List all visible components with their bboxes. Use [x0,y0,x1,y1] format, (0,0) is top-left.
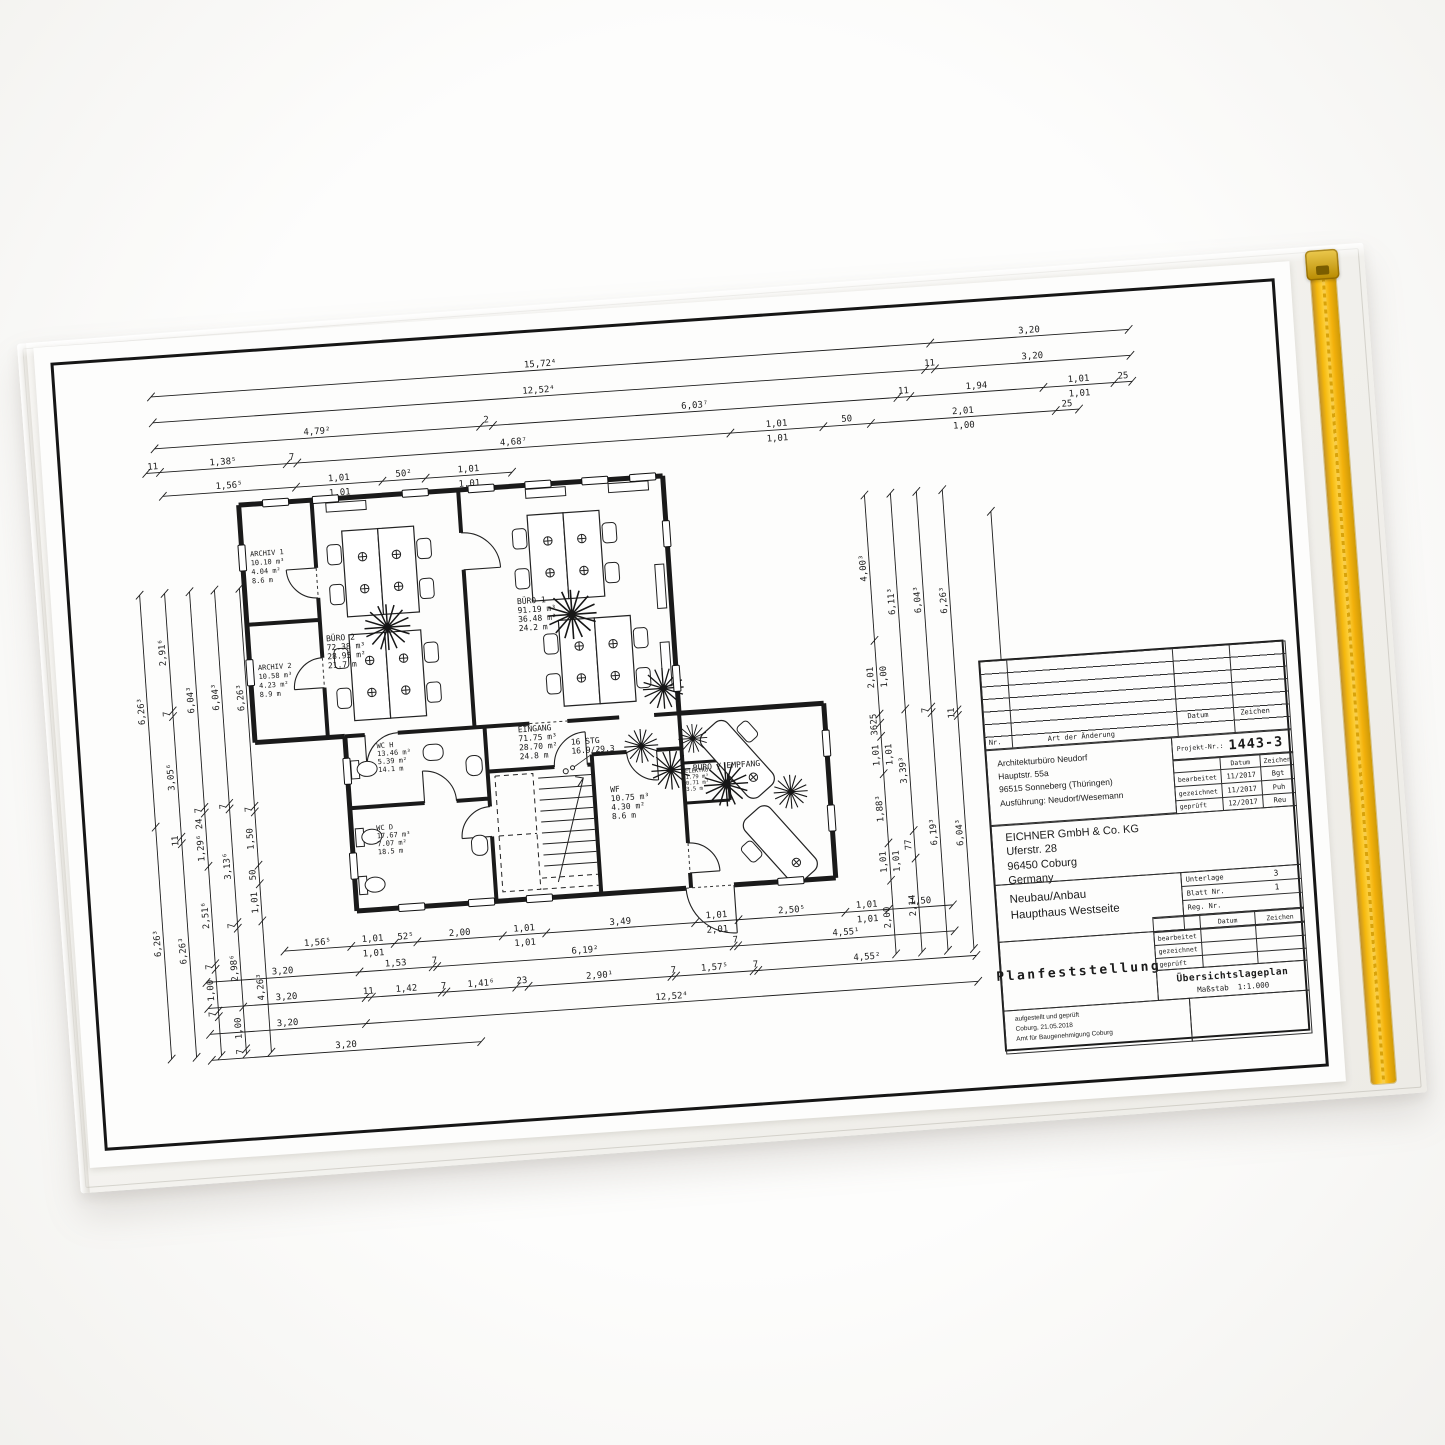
room-value: 3.5 m [686,786,704,793]
dim-label: 25 [869,713,880,725]
dim-label: 4,55¹ [832,927,860,939]
dim-label: 7 [732,935,738,945]
dim-label: 36 [870,724,881,736]
window-marker [672,665,681,691]
empty-cell [1189,990,1313,1042]
dim-label: 7 [219,804,229,810]
window-marker [822,730,831,756]
room-value: 8.6 m [612,810,637,821]
window-marker [582,476,608,485]
dim-label: 77 [904,839,915,851]
dim-label: 50² [395,469,412,480]
dim-label: 6,04³ [186,686,198,714]
dim-label: 7 [227,923,237,929]
change-nr-header: Nr. [989,738,1002,747]
dim-label: 7 [921,707,931,713]
dim-label: 11 [147,462,159,473]
window-marker [778,877,804,886]
dim-label: 1,01 [1067,374,1089,385]
dim-label: 7 [441,981,447,991]
dim-label: 2 [483,415,489,425]
dim-label: 6,26³ [236,684,248,712]
scale-value: 1:1.000 [1237,980,1269,991]
dim-label: 1,56⁵ [304,937,332,949]
dim-label: 4,55² [853,952,881,964]
window-marker [402,489,428,498]
dim-label: 1,01 [884,743,895,765]
dim-label: 3,20 [271,966,293,977]
wc-fixtures [350,741,491,895]
room-value: 14.1 m [378,764,404,774]
dim-label: 6,03⁷ [681,400,709,412]
dim-label: 1,01 [361,934,383,945]
dim-label: 1,01 [328,473,350,484]
dim-label: 1,00 [953,420,975,431]
scale-label: Maßstab [1197,983,1229,994]
dim-label: 4,68⁷ [500,437,528,449]
window-marker [525,480,551,489]
doc-value [1280,900,1302,902]
dim-label: 7 [236,1049,246,1055]
staircase [494,756,599,892]
dim-label: 3,49 [609,917,631,928]
dim-label: 1,01 [871,744,882,766]
dim-label: 1,57⁵ [701,962,729,974]
dim-label: 4,00³ [858,554,870,582]
plan-protection-sleeve: ARCHIV 1 10.10 m³ 4.04 m² 8.6 m BÜRO 2 7… [17,243,1427,1194]
dim-label: 7 [194,808,204,814]
dim-label: 1,01 [457,464,479,475]
dim-label: 1,01 [514,938,536,949]
dim-label: 52⁵ [397,932,414,943]
dim-label: 3,20 [276,1018,298,1029]
dim-label: 11 [924,358,936,369]
dim-label: 4,26³ [255,973,267,1001]
dim-label: 2,50⁵ [778,905,806,917]
dim-label: 1,01 [250,892,261,914]
dim-label: 6,26³ [152,930,164,958]
room-value: 4.23 m² [259,680,289,690]
dim-label: 2,01 [866,666,877,688]
dim-label: 3,39³ [898,756,910,784]
dim-label: 1,38⁵ [209,457,237,469]
dim-label: 11 [363,986,375,997]
dim-label: 1,00 [879,666,890,688]
room-value: 24.8 m [519,750,549,761]
dim-label: 1,53 [385,958,407,969]
dim-label: 7 [162,711,172,717]
window-marker [526,894,552,903]
main-title-cell: Planfeststellung [999,931,1159,1012]
dim-label: 1,01 [513,923,535,934]
dim-label: 7 [244,806,254,812]
dim-label: 1,50 [245,828,256,850]
dim-label: 2,90¹ [586,970,614,982]
room-value: 24.2 m [519,622,549,633]
dim-label: 11 [898,386,910,397]
dim-label: 3,13⁶ [222,852,234,880]
dim-label: 7 [289,453,295,463]
dim-label: 6,04³ [954,818,966,846]
dim-label: 4,79² [303,426,331,438]
window-marker [629,473,655,482]
dim-label: 1,01 [765,419,787,430]
window-marker [262,498,288,507]
dim-label: 1,01 [362,948,384,959]
dim-label: 1,94 [965,381,987,392]
dim-label: 6,11³ [886,588,898,616]
window-marker [246,660,255,686]
dim-label: 6,26³ [938,586,950,614]
dim-label: 50 [841,414,853,425]
zipper-slider [1305,249,1340,281]
dim-label: 6,26³ [178,937,190,965]
window-marker [827,805,836,831]
dim-label: 3,05⁶ [166,763,178,791]
dim-label: 6,04³ [912,586,924,614]
change-datum-header: Datum [1187,711,1209,720]
dim-label: 3,20 [1018,325,1040,336]
dim-label: 7 [753,960,759,970]
dim-label: 7 [208,1011,218,1017]
dim-label: 2,01 [706,924,728,935]
dim-label: 1,00 [233,1017,244,1039]
dim-label: 1,01 [857,914,879,925]
dim-label: 1,50 [909,896,931,907]
dim-label: 2,91⁶ [157,639,169,667]
dim-label: 1,56⁵ [215,480,243,492]
plan-sheet: ARCHIV 1 10.10 m³ 4.04 m² 8.6 m BÜRO 2 7… [33,261,1346,1168]
dim-label: 1,88³ [875,795,887,823]
plants [363,574,809,837]
doc-value: 3 [1273,867,1300,878]
room-value: 8.6 m [252,576,274,585]
window-marker [343,758,352,784]
dim-label: 1,01 [879,851,890,873]
dim-label: 3,20 [275,992,297,1003]
dim-label: 2,51⁶ [200,902,212,930]
dim-label: 2,01 [952,406,974,417]
photo-background: ARCHIV 1 10.10 m³ 4.04 m² 8.6 m BÜRO 2 7… [0,0,1445,1445]
dim-label: 1,01 [705,910,727,921]
window-marker [662,521,671,547]
window-marker [312,495,338,504]
dim-label: 1,42 [395,983,417,994]
window-marker [468,898,494,907]
dim-label: 23 [516,976,528,987]
dim-label: 1,01 [856,900,878,911]
dim-label: 6,04³ [210,683,222,711]
title-block: Nr. Art der Änderung Datum Zeichen Archi… [978,639,1310,1051]
room-value: 4.04 m² [251,566,281,576]
dim-label: 3,20 [335,1040,357,1051]
doc-value: 1 [1274,881,1301,892]
room-value: 18.5 m [378,847,404,857]
main-title: Planfeststellung [1000,932,1158,1010]
dim-label: 6,19² [571,945,599,957]
dim-label: 6,26³ [136,698,148,726]
project-number-value: 1443-3 [1228,733,1284,753]
dim-label: 7 [432,956,438,966]
dim-label: 1,41⁶ [467,978,495,990]
dim-label: 6,19³ [928,818,940,846]
dim-label: 1,01 [766,433,788,444]
architect-block: Architekturbüro Neudorf Hauptstr. 55a 96… [985,737,1177,826]
window-marker [399,903,425,912]
dim-label: 50 [248,869,259,881]
dim-label: 11 [171,835,182,847]
office-desks [324,471,823,928]
window-marker [349,853,358,879]
room-value: 8.9 m [260,690,282,699]
drawing-frame: ARCHIV 1 10.10 m³ 4.04 m² 8.6 m BÜRO 2 7… [50,278,1329,1151]
dim-label: 7 [205,964,215,970]
dim-label: 3,20 [1021,351,1043,362]
dim-label: 25 [1117,371,1129,382]
signature-table: Datum Zeichen bearbeitet 11/2017 Bgt gez… [1172,751,1297,814]
dim-label: 7 [670,966,676,976]
dim-label: 2,00 [449,928,471,939]
project-number-label: Projekt-Nr.: [1176,741,1223,752]
dim-label: 2,98⁶ [229,954,241,982]
dim-label: 1,01 [892,850,903,872]
dim-label: 25 [1061,399,1073,410]
window-marker [468,484,494,493]
window-marker [238,545,247,571]
